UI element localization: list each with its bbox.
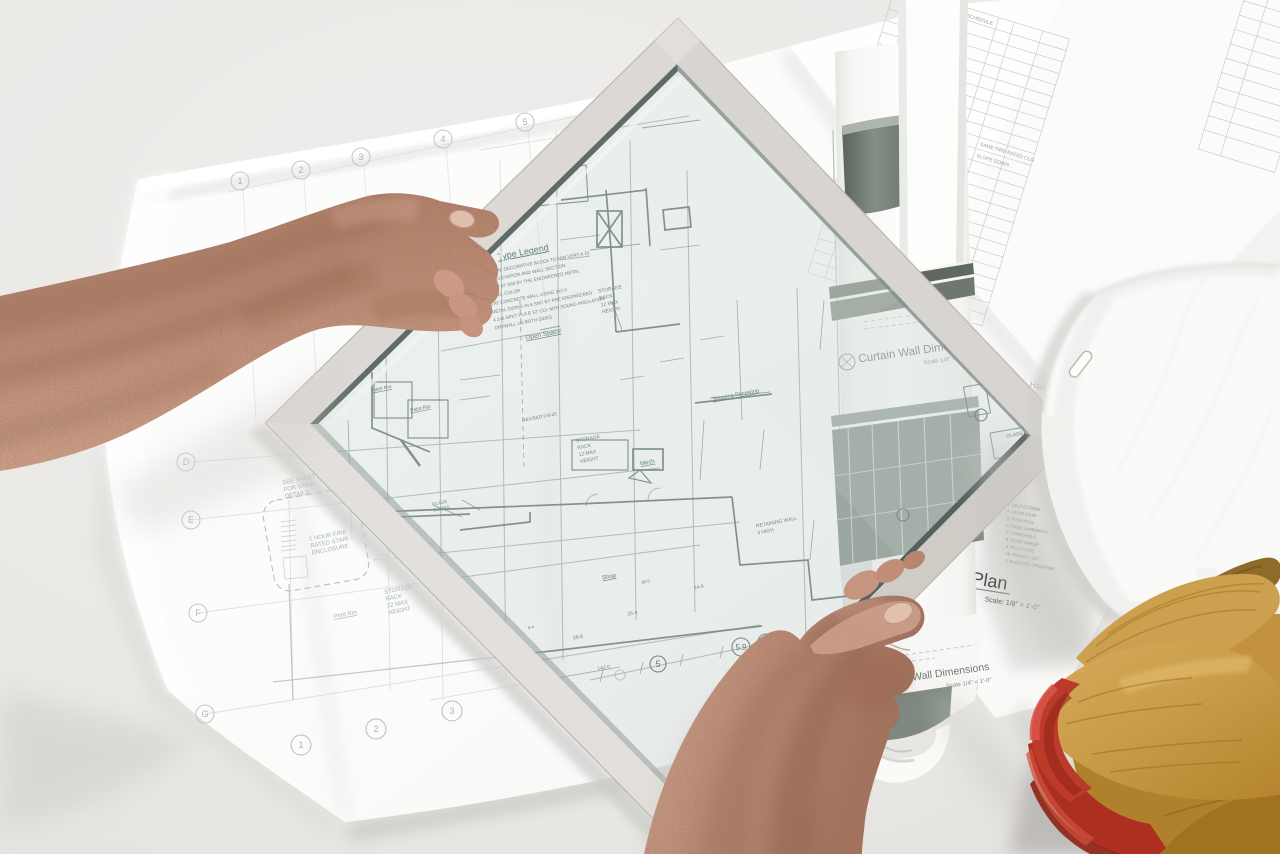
svg-text:5: 5 (655, 659, 660, 669)
svg-text:2: 2 (373, 724, 378, 734)
svg-text:4: 4 (440, 134, 445, 144)
svg-text:1: 1 (298, 740, 303, 750)
svg-text:5.9: 5.9 (735, 643, 747, 652)
svg-text:5: 5 (522, 117, 527, 127)
svg-text:E: E (188, 515, 194, 525)
svg-text:G: G (201, 709, 208, 719)
svg-text:2: 2 (298, 165, 303, 175)
svg-text:3: 3 (358, 152, 363, 162)
svg-text:3: 3 (449, 706, 454, 716)
svg-text:1: 1 (237, 176, 242, 186)
svg-text:F: F (195, 608, 201, 618)
